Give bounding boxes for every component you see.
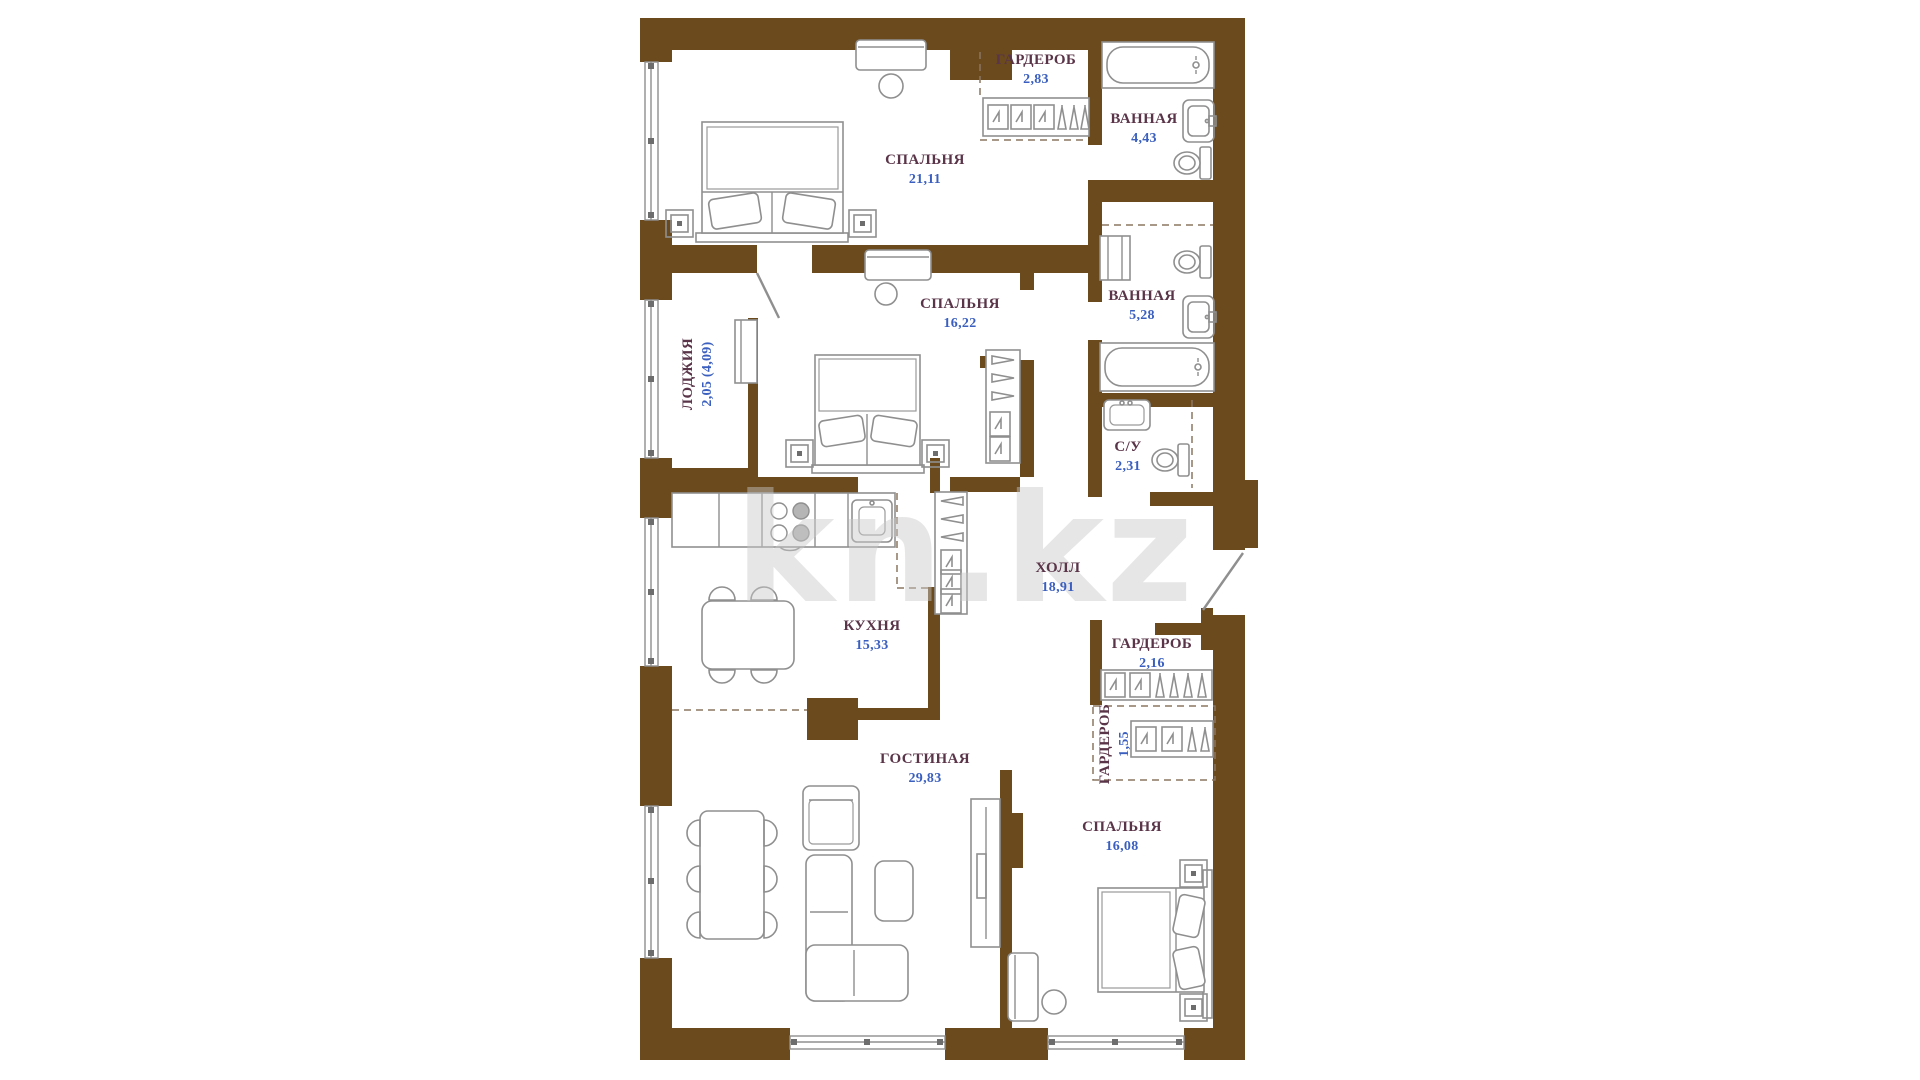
room-name: ХОЛЛ [1036,561,1081,576]
room-name: СПАЛЬНЯ [920,297,1000,312]
room-label-living-room: ГОСТИНАЯ 29,83 [880,752,970,786]
room-label-wardrobe-2: ГАРДЕРОБ 2,16 [1112,637,1193,671]
room-name: ГАРДЕРОБ [1112,637,1193,652]
room-area: 4,43 [1110,132,1177,146]
washer-cabinet-icon [1100,236,1130,280]
room-area: 2,83 [996,73,1077,87]
basin-icon [1183,296,1216,338]
room-name: ГАРДЕРОБ [1098,704,1113,785]
room-area: 16,22 [920,317,1000,331]
room-name: ВАННАЯ [1108,289,1175,304]
room-label-kitchen: КУХНЯ 15,33 [844,619,901,653]
bathtub-icon [1102,42,1214,88]
room-name: СПАЛЬНЯ [1082,820,1162,835]
room-area: 1,55 [1118,704,1132,785]
room-area: 5,28 [1108,309,1175,323]
dresser-icon [1008,953,1038,1021]
floor-plan-page: kn.kz СПАЛЬНЯ 21,11 ГАРДЕРОБ 2,83 ВАННАЯ… [0,0,1920,1080]
room-name: ВАННАЯ [1110,112,1177,127]
toilet-icon [1174,246,1211,278]
room-area: 2,31 [1114,460,1141,474]
kitchen-furniture [672,493,895,683]
room-label-bedroom-3: СПАЛЬНЯ 16,08 [1082,820,1162,854]
dining-table-icon [700,811,764,939]
room-label-hall: ХОЛЛ 18,91 [1036,561,1081,595]
room-name: ГАРДЕРОБ [996,53,1077,68]
room-label-loggia: ЛОДЖИЯ 2,05 (4,09) [681,338,715,410]
stool-icon [1042,990,1066,1014]
bed-icon [812,465,924,473]
bed-icon [696,233,848,242]
dresser-icon [856,40,926,70]
nightstand-icon [849,210,876,237]
room-label-wardrobe-1: ГАРДЕРОБ 2,83 [996,53,1077,87]
room-area: 16,08 [1082,840,1162,854]
room-area: 18,91 [1036,581,1081,595]
stool-icon [875,283,897,305]
toilet-icon [1152,444,1189,476]
dining-table-icon [702,601,794,669]
basin-icon [1183,100,1216,142]
coffee-table-icon [875,861,913,921]
room-name: СПАЛЬНЯ [885,153,965,168]
stool-icon [879,74,903,98]
living-room-furniture [687,786,1000,1001]
room-label-bedroom-1: СПАЛЬНЯ 21,11 [885,153,965,187]
bedroom-3-furniture [1008,860,1212,1021]
hall-closet-rack [935,492,967,614]
room-label-bedroom-2: СПАЛЬНЯ 16,22 [920,297,1000,331]
tv-stand-icon [971,799,1000,947]
toilet-icon [1174,147,1211,179]
room-name: С/У [1114,440,1141,455]
room-area: 15,33 [844,639,901,653]
loggia-door-leaf [757,273,779,318]
room-name: ЛОДЖИЯ [681,338,696,410]
room-label-wc: С/У 2,31 [1114,440,1141,474]
bedroom-1-furniture [666,40,926,242]
bedroom-2-furniture [735,250,1020,473]
armchair-icon [803,786,859,850]
dresser-icon [865,250,931,280]
wardrobe-2-furniture [1101,670,1212,700]
room-label-bathroom-2: ВАННАЯ 5,28 [1108,289,1175,323]
room-area: 2,05 (4,09) [701,338,715,410]
room-name: ГОСТИНАЯ [880,752,970,767]
nightstand-icon [786,440,813,467]
bathtub-icon [1100,343,1214,391]
room-label-wardrobe-3: ГАРДЕРОБ 1,55 [1098,704,1132,785]
wardrobe-3-furniture [1131,721,1213,757]
wardrobe-rack-icon [935,492,967,614]
room-label-bathroom-1: ВАННАЯ 4,43 [1110,112,1177,146]
room-area: 21,11 [885,173,965,187]
wardrobe-rack-icon [986,350,1020,463]
loggia-cabinet-icon [735,320,757,383]
room-name: КУХНЯ [844,619,901,634]
room-area: 2,16 [1112,657,1193,671]
room-area: 29,83 [880,772,970,786]
wardrobe-1-furniture [983,98,1089,136]
